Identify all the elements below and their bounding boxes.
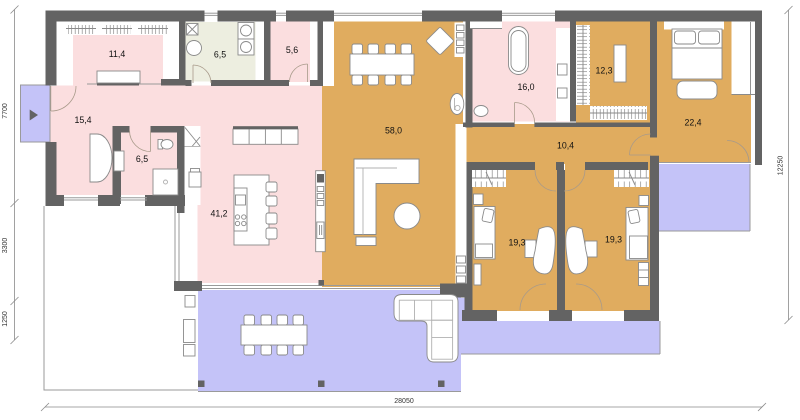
svg-text:11,4: 11,4	[109, 49, 126, 59]
svg-text:19,3: 19,3	[508, 238, 525, 248]
svg-text:12250: 12250	[778, 156, 785, 176]
svg-text:16,0: 16,0	[517, 82, 534, 92]
svg-text:6,5: 6,5	[214, 50, 226, 60]
svg-text:58,0: 58,0	[385, 126, 402, 136]
svg-text:10,4: 10,4	[557, 141, 574, 151]
svg-text:5,6: 5,6	[286, 45, 298, 55]
svg-text:41,2: 41,2	[210, 209, 227, 219]
svg-text:3300: 3300	[2, 238, 9, 254]
svg-text:12,3: 12,3	[595, 66, 612, 76]
svg-text:15,4: 15,4	[74, 115, 91, 125]
svg-text:22,4: 22,4	[684, 118, 701, 128]
svg-text:19,3: 19,3	[605, 235, 622, 245]
svg-text:7700: 7700	[2, 103, 9, 119]
svg-text:6,5: 6,5	[136, 154, 148, 164]
svg-text:1250: 1250	[2, 311, 9, 327]
svg-text:28050: 28050	[394, 398, 414, 405]
